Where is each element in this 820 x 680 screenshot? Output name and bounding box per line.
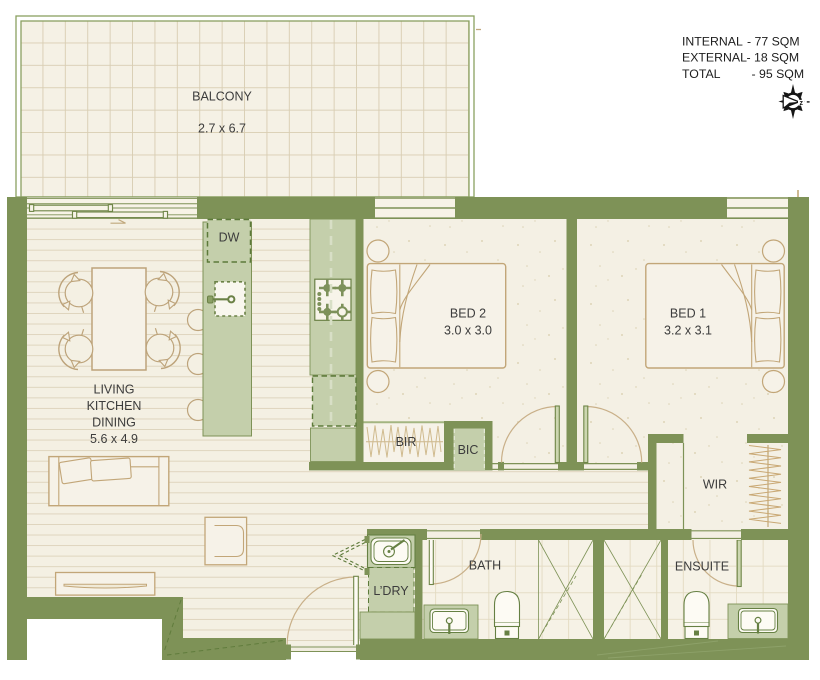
svg-text:EXTERNAL: EXTERNAL xyxy=(682,51,747,65)
svg-text:L’DRY: L’DRY xyxy=(373,584,409,598)
svg-text:ENSUITE: ENSUITE xyxy=(675,559,729,573)
svg-text:BIR: BIR xyxy=(396,435,417,449)
svg-text:- 95 SQM: - 95 SQM xyxy=(752,67,805,81)
svg-text:- 77 SQM: - 77 SQM xyxy=(747,35,800,49)
svg-text:z: z xyxy=(799,100,803,107)
svg-text:INTERNAL: INTERNAL xyxy=(682,35,743,49)
svg-text:KITCHEN: KITCHEN xyxy=(87,399,142,413)
svg-text:3.2 x 3.1: 3.2 x 3.1 xyxy=(664,324,712,338)
svg-text:BALCONY: BALCONY xyxy=(192,90,252,104)
svg-text:- 18 SQM: - 18 SQM xyxy=(747,51,800,65)
svg-text:WIR: WIR xyxy=(703,478,727,492)
svg-text:BATH: BATH xyxy=(469,558,501,572)
svg-text:DINING: DINING xyxy=(92,416,136,430)
svg-text:2.7 x 6.7: 2.7 x 6.7 xyxy=(198,122,246,136)
svg-text:BED 2: BED 2 xyxy=(450,307,486,321)
svg-text:3.0 x 3.0: 3.0 x 3.0 xyxy=(444,324,492,338)
svg-text:TOTAL: TOTAL xyxy=(682,67,721,81)
svg-text:LIVING: LIVING xyxy=(94,383,135,397)
svg-text:DW: DW xyxy=(219,231,240,245)
svg-text:BED 1: BED 1 xyxy=(670,307,706,321)
svg-text:5.6 x 4.9: 5.6 x 4.9 xyxy=(90,432,138,446)
svg-text:BIC: BIC xyxy=(458,443,479,457)
